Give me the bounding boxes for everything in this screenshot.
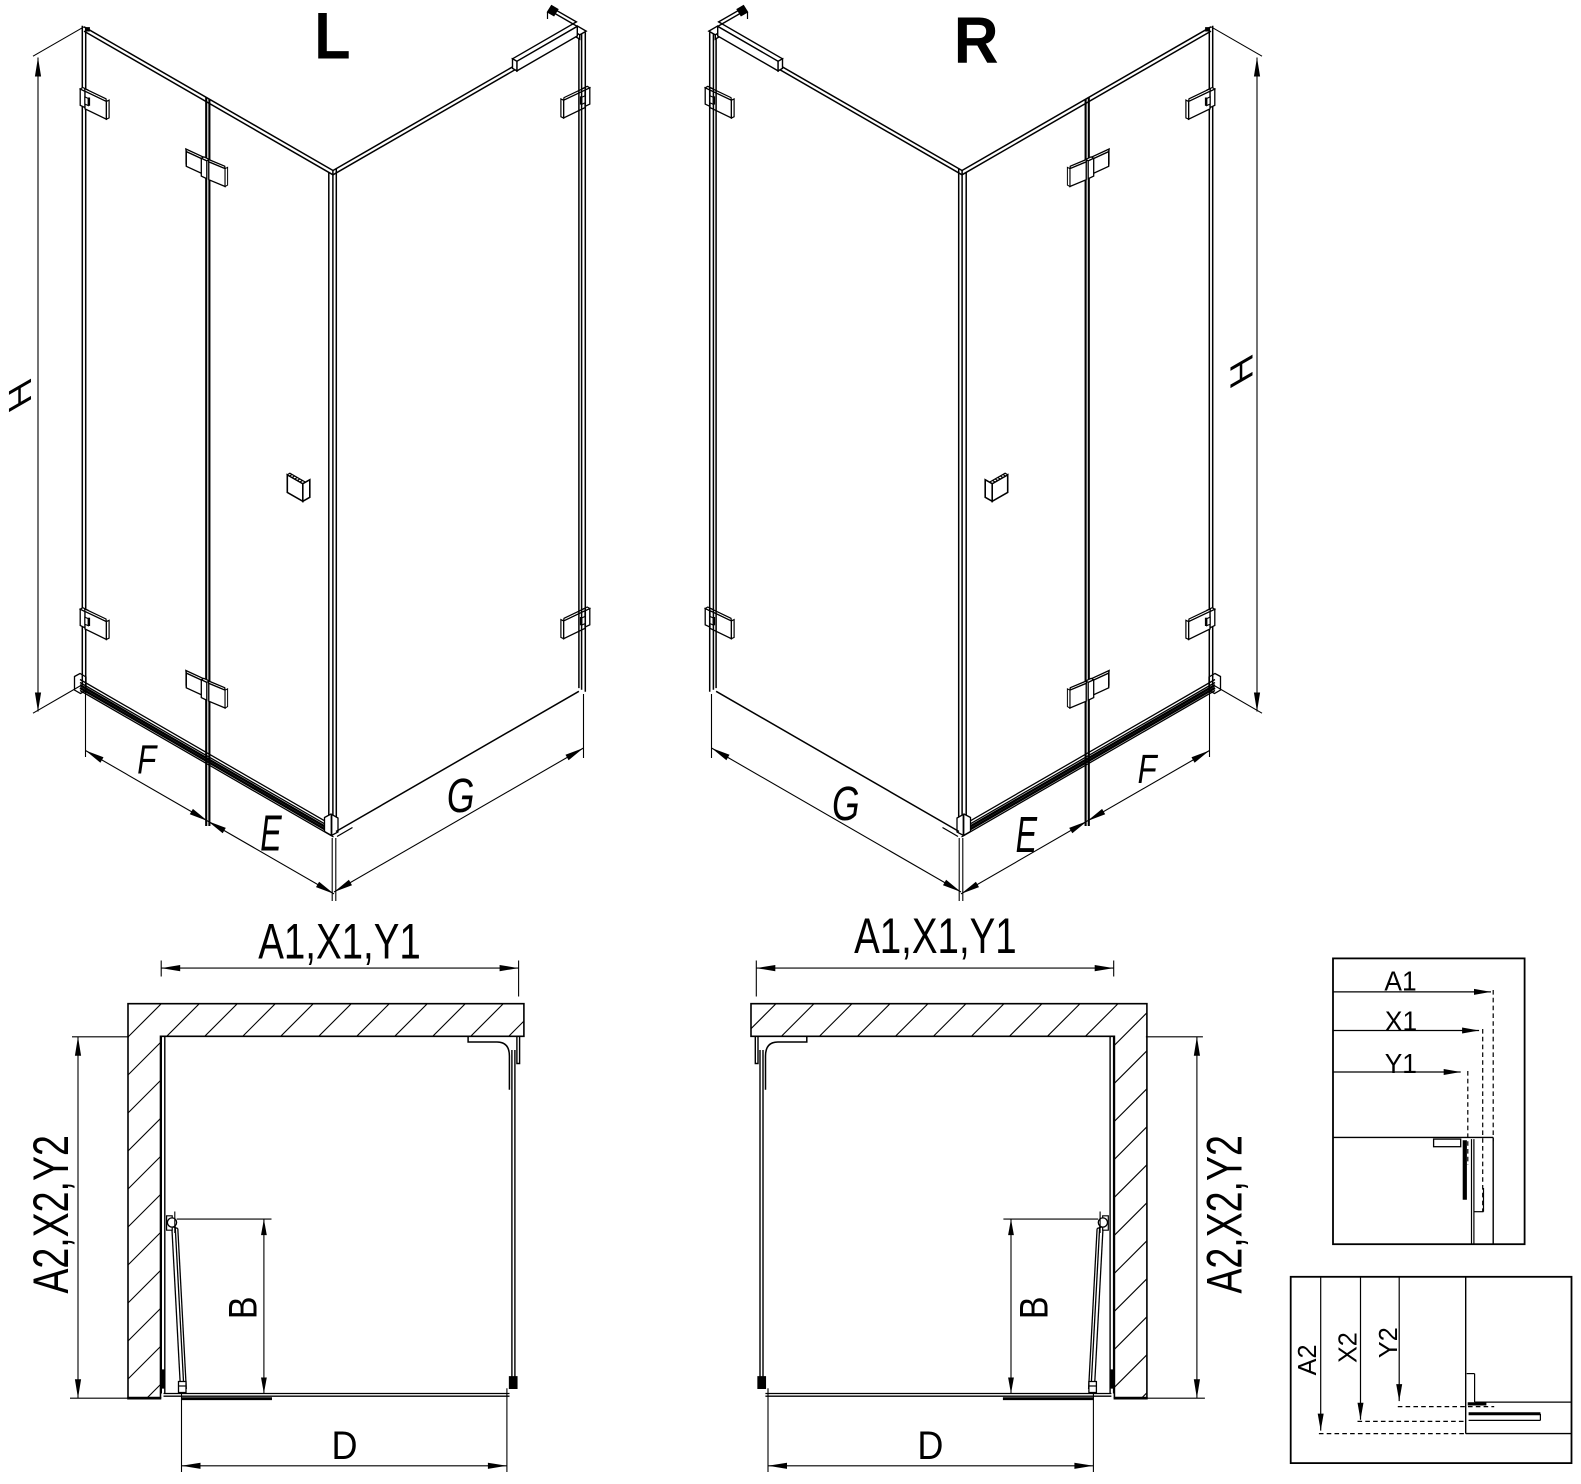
svg-text:R: R <box>954 3 999 77</box>
svg-text:F: F <box>1138 746 1159 792</box>
svg-text:X2: X2 <box>1334 1332 1362 1363</box>
svg-text:E: E <box>1016 806 1038 863</box>
svg-text:A2,X2,Y2: A2,X2,Y2 <box>24 1135 79 1293</box>
svg-text:A1,X1,Y1: A1,X1,Y1 <box>854 909 1017 964</box>
svg-text:B: B <box>220 1296 265 1319</box>
svg-text:G: G <box>447 769 475 822</box>
svg-text:A2: A2 <box>1294 1344 1322 1375</box>
svg-text:A1: A1 <box>1384 965 1416 997</box>
svg-text:Y1: Y1 <box>1385 1047 1417 1079</box>
svg-text:Y2: Y2 <box>1375 1327 1403 1358</box>
svg-text:D: D <box>917 1424 943 1468</box>
svg-text:E: E <box>260 805 282 862</box>
svg-text:B: B <box>1011 1296 1056 1319</box>
svg-text:A2,X2,Y2: A2,X2,Y2 <box>1197 1135 1252 1293</box>
svg-text:G: G <box>832 777 860 830</box>
svg-text:D: D <box>331 1424 357 1468</box>
svg-text:L: L <box>314 0 350 73</box>
svg-text:X1: X1 <box>1385 1005 1417 1037</box>
svg-text:A1,X1,Y1: A1,X1,Y1 <box>258 915 421 970</box>
svg-text:F: F <box>137 736 158 782</box>
